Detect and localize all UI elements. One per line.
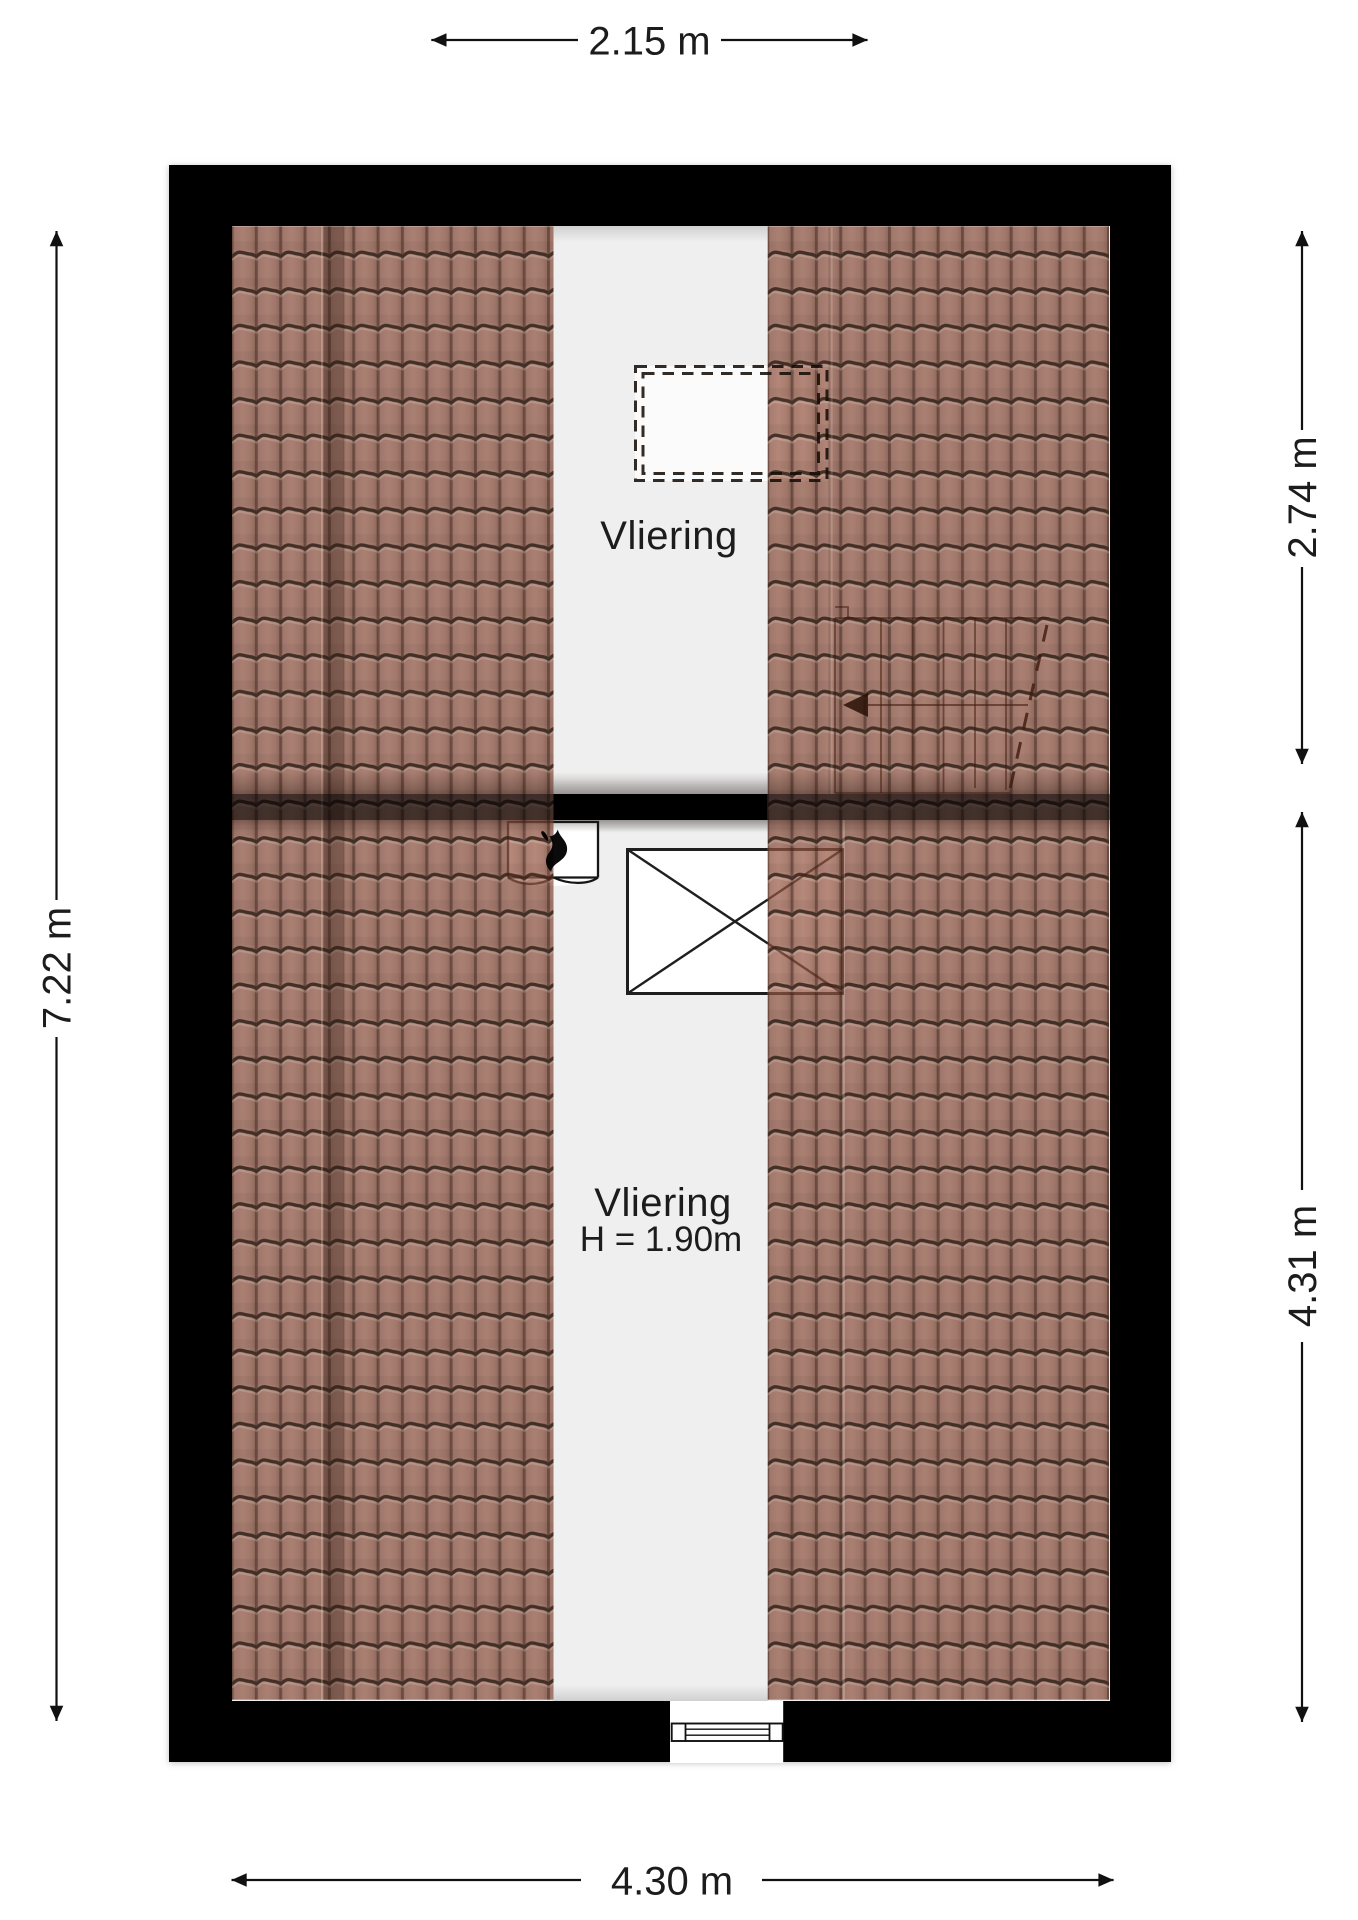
svg-text:Vliering: Vliering [594,1181,731,1225]
svg-text:4.31 m: 4.31 m [1281,1205,1325,1327]
svg-text:Vliering: Vliering [600,514,737,558]
svg-text:2.15 m: 2.15 m [588,20,710,64]
svg-text:H = 1.90m: H = 1.90m [580,1220,742,1259]
svg-text:4.30 m: 4.30 m [611,1860,733,1904]
svg-text:7.22 m: 7.22 m [36,907,80,1029]
svg-text:2.74 m: 2.74 m [1281,436,1325,558]
